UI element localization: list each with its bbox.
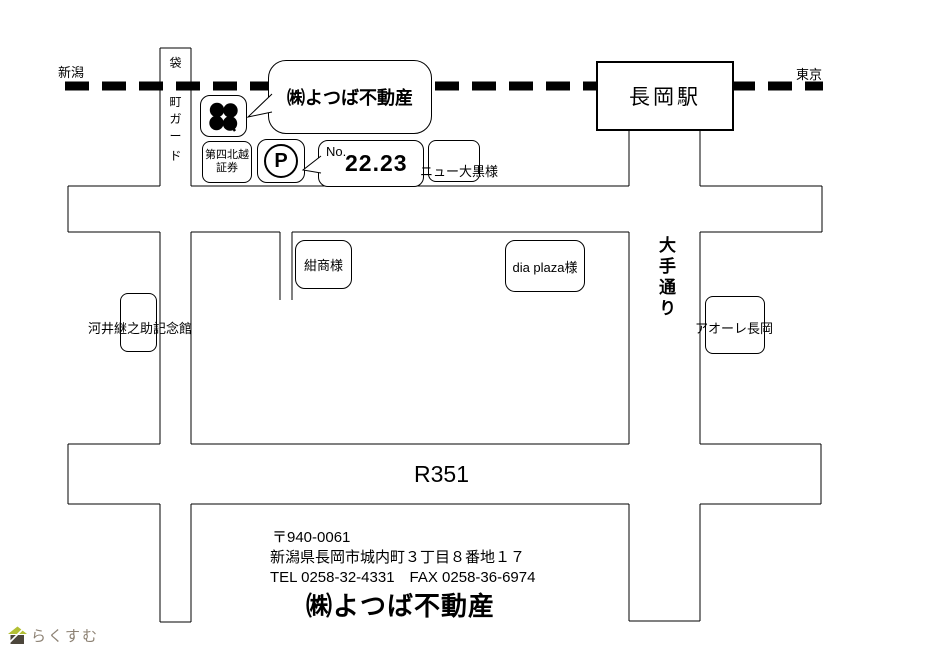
clover-box (200, 95, 247, 137)
new-daikoku-label: ニュー大黒様 (420, 161, 498, 180)
fukuromachi-guard-label: 袋 町 ガ ー ド (160, 48, 191, 186)
otedori-label: 大手通り (653, 236, 678, 320)
parking-icon: P (264, 144, 298, 178)
fukuromachi-char: 町 (160, 93, 191, 110)
station-label: 長岡駅 (597, 62, 733, 130)
company-bubble-label: ㈱よつば不動産 (287, 84, 413, 110)
fukuromachi-char: ガ (160, 110, 191, 127)
securities-line2: 証券 (205, 162, 249, 175)
postal-code: 〒940-0061 (272, 526, 350, 547)
fukuromachi-char: 袋 (160, 54, 191, 71)
house-icon (8, 626, 27, 645)
tel-fax-line: TEL 0258-32-4331 FAX 0258-36-6974 (270, 566, 535, 587)
dia-plaza-box: dia plaza様 (505, 240, 585, 292)
rakusumu-text: らくすむ (31, 625, 99, 646)
rakusumu-logo: らくすむ (8, 625, 99, 646)
aore-label: アオーレ長岡 (695, 318, 773, 337)
tokyo-label: 東京 (796, 64, 822, 83)
clover-icon (202, 97, 245, 135)
parking-no-label: No. (326, 144, 346, 159)
securities-line1: 第四北越 (205, 149, 249, 162)
address-line: 新潟県長岡市城内町３丁目８番地１７ (270, 546, 525, 567)
company-bubble: ㈱よつば不動産 (268, 60, 432, 134)
kawai-memorial-label: 河井継之助記念館 (88, 318, 192, 337)
parking-no-value: 22.23 (345, 150, 408, 177)
parking-number-bubble: No. 22.23 (318, 140, 424, 187)
konsho-label: 紺商様 (304, 255, 343, 274)
fukuromachi-char: ド (160, 147, 191, 164)
parking-letter: P (274, 150, 287, 173)
daishi-hokuetsu-box: 第四北越 証券 (202, 141, 252, 183)
fukuromachi-char: ー (160, 127, 191, 144)
access-map: 新潟 東京 長岡駅 袋 町 ガ ー ド ㈱よつば不動産 第四北越 証券 P (0, 0, 942, 648)
konsho-box: 紺商様 (295, 240, 352, 289)
parking-box: P (257, 139, 305, 183)
dia-plaza-label: dia plaza様 (512, 257, 577, 276)
company-name-footer: ㈱よつば不動産 (306, 586, 495, 623)
niigata-label: 新潟 (58, 62, 84, 81)
r351-label: R351 (414, 461, 469, 488)
